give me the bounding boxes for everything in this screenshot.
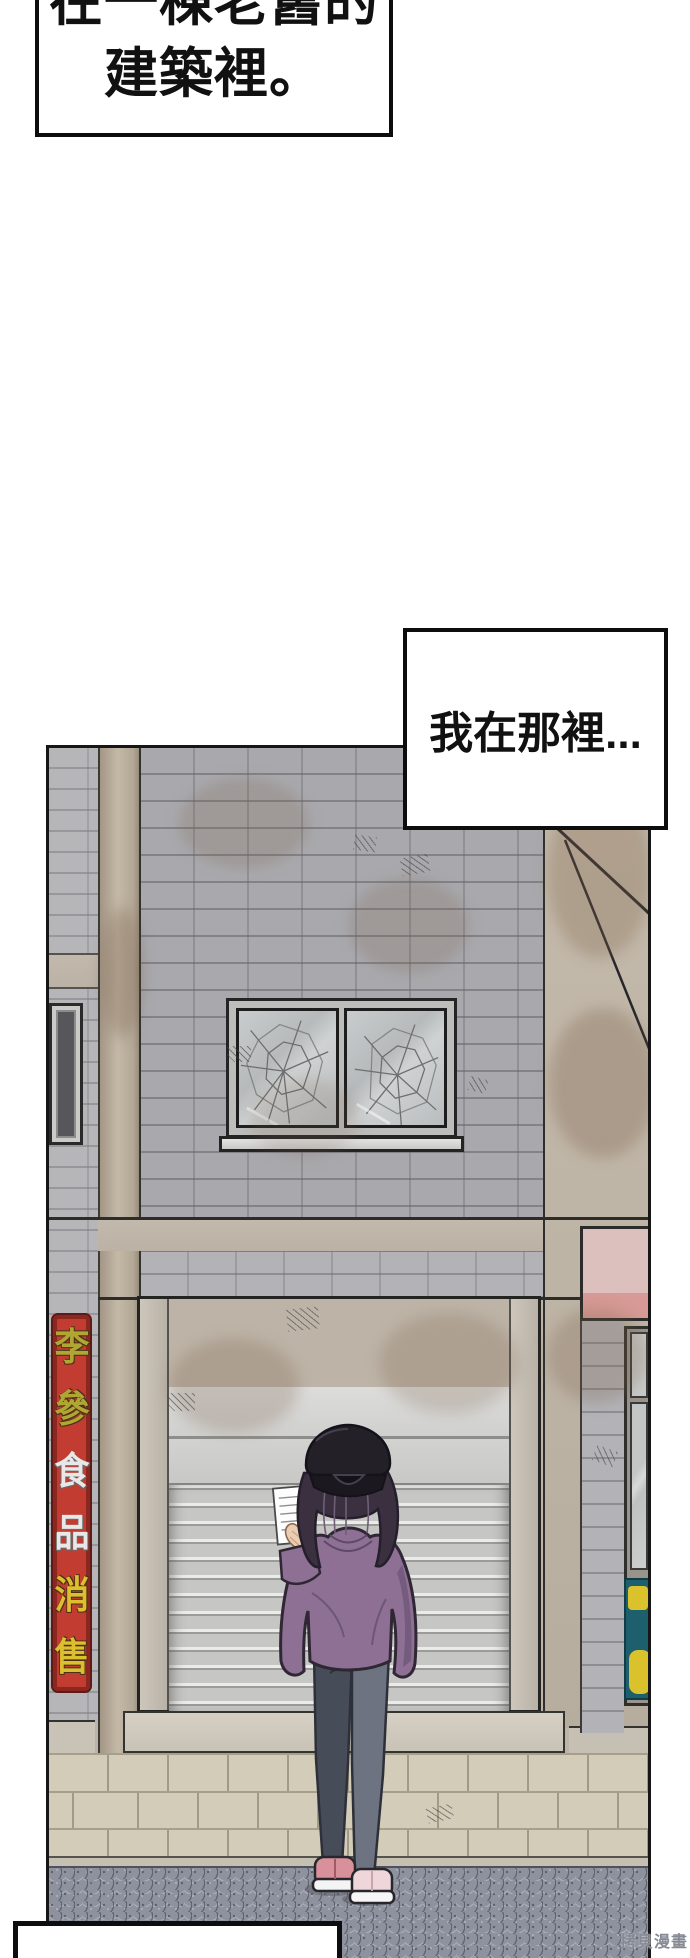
narration-box-top: 在一棟老舊的 建築裡。 (35, 0, 393, 137)
window-sill (219, 1136, 464, 1152)
neighbor-glass-door (630, 1402, 648, 1570)
jeans (314, 1653, 389, 1877)
teal-sign-yellow-block (628, 1586, 648, 1610)
pink-sign (580, 1226, 651, 1321)
sign-char: 品 (54, 1506, 89, 1562)
floor-divider-band (98, 1220, 543, 1251)
corner-pillar (98, 748, 141, 1756)
sign-char: 李 (54, 1320, 89, 1376)
person (268, 1423, 428, 1908)
side-window (49, 1003, 83, 1145)
scratch-marks (286, 1306, 320, 1331)
sign-char: 消 (54, 1568, 89, 1624)
teal-sign-yellow-block (629, 1650, 651, 1694)
side-wall-band (49, 953, 98, 989)
narration-line: 建築裡。 (39, 38, 389, 110)
watermark: 拷貝漫畫 (620, 1928, 688, 1952)
brick-band-lower (141, 1251, 543, 1297)
storefront-column-left (140, 1299, 169, 1710)
scratch-marks (167, 1393, 195, 1411)
cap (306, 1425, 390, 1496)
sign-char: 食 (54, 1444, 89, 1500)
teal-sign (624, 1578, 651, 1700)
neighbor-window-pane (630, 1332, 648, 1398)
scratch-marks (227, 1046, 251, 1062)
scratch-marks (353, 835, 377, 853)
narration-box-bottom (13, 1921, 342, 1958)
comic-page: 李 參 食 品 消 售 (0, 0, 690, 1958)
crack-lines-icon (347, 1011, 444, 1127)
sign-char: 參 (54, 1382, 89, 1438)
narration-line: 在一棟老舊的 (39, 0, 389, 38)
shoe-right (350, 1869, 394, 1903)
left-shop-sign: 李 參 食 品 消 售 (51, 1313, 92, 1693)
side-window-pane (56, 1010, 76, 1138)
power-lines (507, 826, 651, 1116)
illustration-panel: 李 參 食 品 消 售 (46, 745, 651, 1958)
shoe-left (313, 1857, 357, 1891)
cracked-window (226, 998, 457, 1138)
neighbor-brick-column (580, 1321, 624, 1733)
window-pane-right (344, 1008, 447, 1128)
narration-line: 我在那裡... (429, 697, 642, 761)
storefront-column-right (509, 1299, 538, 1710)
window-pane-left (236, 1008, 339, 1128)
narration-box-mid: 我在那裡... (403, 628, 668, 830)
crack-lines-icon (239, 1011, 336, 1127)
sign-char: 售 (54, 1630, 89, 1686)
